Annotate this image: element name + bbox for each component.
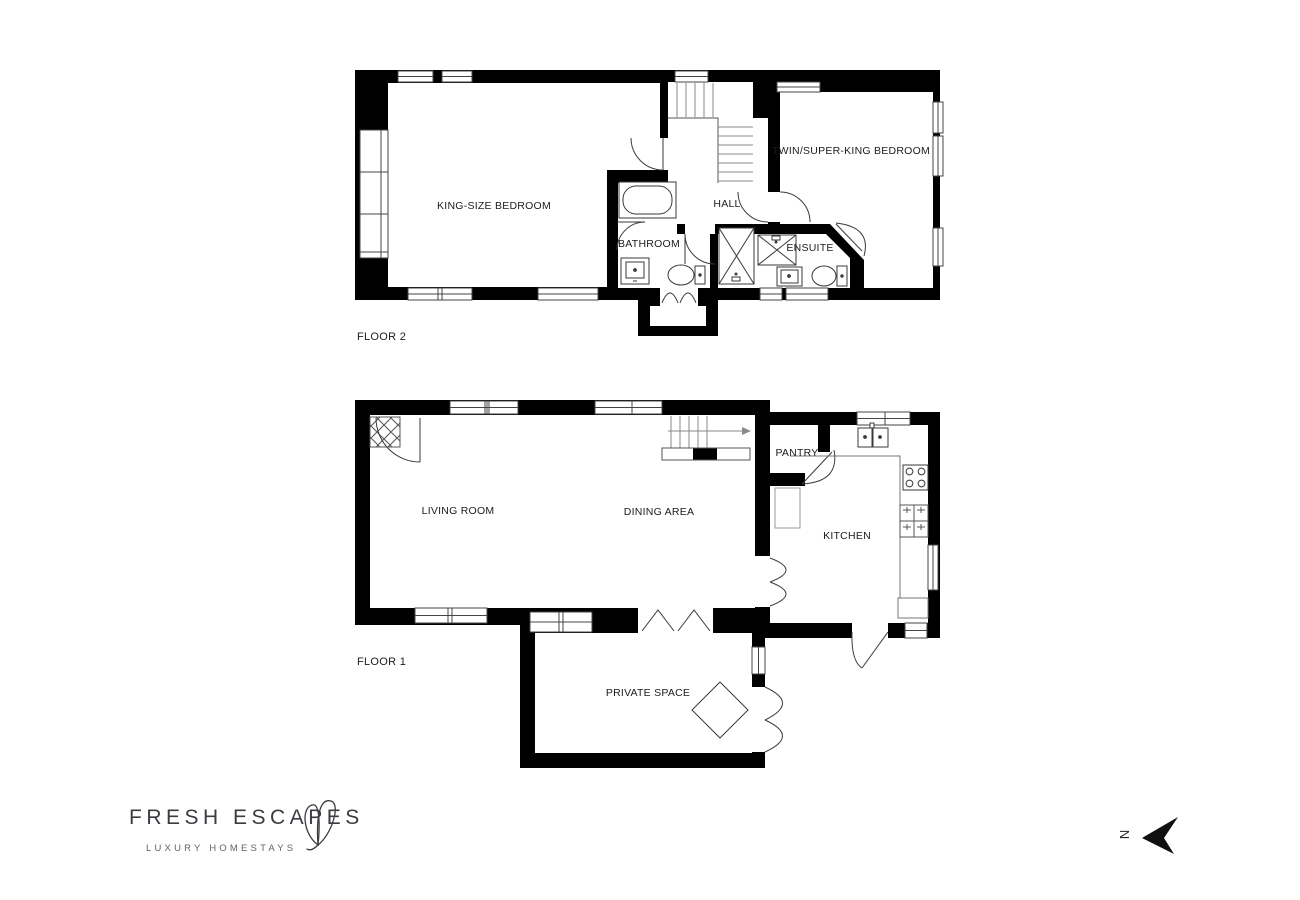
room-label-hall: HALL [713, 198, 740, 210]
room-label-bathroom: BATHROOM [618, 238, 680, 250]
pantry-recess-icon [775, 488, 800, 528]
room-label-dining-area: DINING AREA [624, 506, 694, 518]
butterfly-icon [299, 796, 341, 852]
shower-icon [719, 228, 754, 284]
room-label-private-space: PRIVATE SPACE [606, 687, 690, 699]
floor1-rooms [370, 415, 928, 753]
oven-stack-icon [900, 505, 928, 537]
floor1-plan [355, 400, 940, 768]
ensuite-toilet-icon [812, 266, 847, 286]
logo-subtitle: LUXURY HOMESTAYS [146, 843, 296, 854]
hob-icon [903, 465, 928, 490]
north-label: N [1117, 830, 1132, 839]
counter-unit-icon [898, 598, 928, 618]
room-label-ensuite: ENSUITE [786, 242, 833, 254]
room-label-kitchen: KITCHEN [823, 530, 871, 542]
fireplace-icon [370, 417, 400, 447]
bathtub-icon [619, 182, 676, 218]
floor2-label: FLOOR 2 [357, 331, 406, 343]
north-arrow-icon [1142, 817, 1178, 854]
floorplan-sheet: KING-SIZE BEDROOM HALL BATHROOM ENSUITE … [0, 0, 1300, 900]
room-label-pantry: PANTRY [775, 447, 818, 459]
bathroom-sink-icon [621, 258, 649, 284]
floor1-label: FLOOR 1 [357, 656, 406, 668]
ensuite-sink-icon [777, 267, 802, 286]
room-label-living-room: LIVING ROOM [422, 505, 495, 517]
room-label-twin-bedroom: TWIN/SUPER-KING BEDROOM [772, 145, 930, 157]
bathroom-toilet-icon [668, 265, 705, 285]
room-label-king-bedroom: KING-SIZE BEDROOM [437, 200, 551, 212]
floorplan-drawing [0, 0, 1300, 900]
